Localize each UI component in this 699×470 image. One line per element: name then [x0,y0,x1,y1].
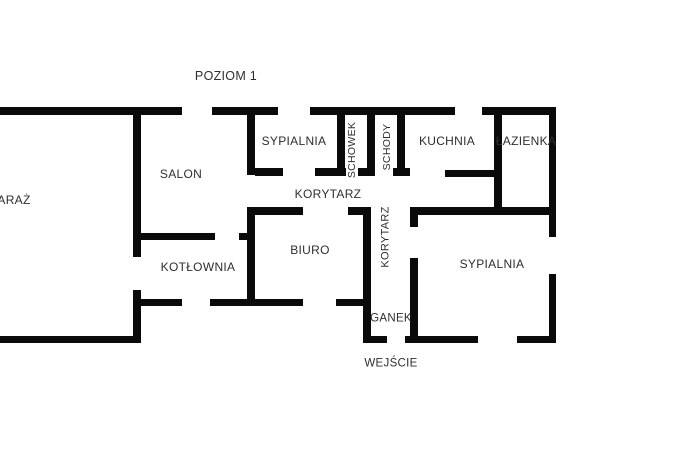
labels-layer: POZIOM 1ARAŻSALONSYPIALNIASCHOWEKSCHODYK… [0,0,699,470]
room-label-garaz: ARAŻ [0,194,31,206]
room-label-salon: SALON [160,168,202,180]
room-label-korytarz-poziomy: KORYTARZ [295,188,362,200]
room-label-wejscie: WEJŚCIE [364,358,417,370]
room-label-kotlownia: KOTŁOWNIA [161,261,236,273]
floor-plan: POZIOM 1ARAŻSALONSYPIALNIASCHOWEKSCHODYK… [0,0,699,470]
room-label-kuchnia: KUCHNIA [419,135,475,147]
room-label-schody: SCHODY [382,124,393,171]
room-label-level-title: POZIOM 1 [195,70,257,83]
room-label-schowek: SCHOWEK [347,122,358,178]
room-label-sypialnia-dolna: SYPIALNIA [460,258,525,270]
room-label-lazienka: ŁAZIENKA [496,135,556,147]
room-label-ganek: GANEK [370,313,412,325]
room-label-korytarz-pionowy: KORYTARZ [381,206,392,267]
room-label-sypialnia-gorna: SYPIALNIA [262,135,327,147]
room-label-biuro: BIURO [290,244,330,256]
